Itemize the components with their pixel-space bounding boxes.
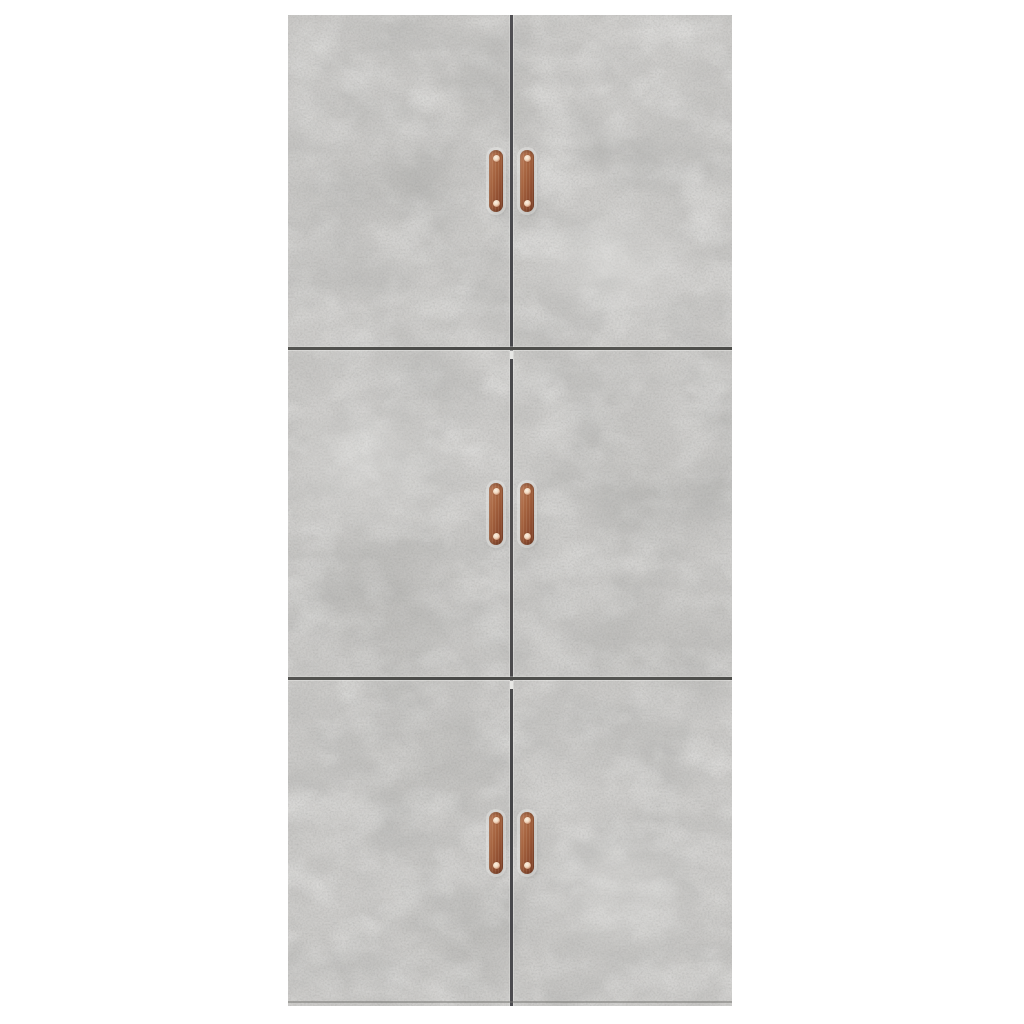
door-middle-left	[288, 350, 510, 677]
handle-rivet-bottom	[493, 200, 500, 207]
door-middle-right	[513, 350, 732, 677]
handle-rivet-bottom	[524, 862, 531, 869]
seam-highlight	[510, 351, 513, 359]
handle-rivet-top	[524, 817, 531, 824]
handle-rivet-bottom	[493, 533, 500, 540]
handle-rivet-top	[524, 155, 531, 162]
cabinet-bottom-edge	[288, 1001, 732, 1003]
door-handle	[489, 812, 503, 874]
door-handle	[489, 150, 503, 212]
handle-rivet-top	[493, 488, 500, 495]
cabinet	[288, 15, 732, 1006]
door-handle	[520, 812, 534, 874]
handle-rivet-top	[493, 155, 500, 162]
door-top-left	[288, 15, 510, 347]
handle-rivet-bottom	[524, 200, 531, 207]
upper-door-seam	[288, 347, 732, 350]
seam-highlight	[510, 681, 513, 689]
handle-rivet-top	[524, 488, 531, 495]
door-handle	[489, 483, 503, 545]
product-photo-scene	[0, 0, 1024, 1024]
lower-door-seam	[288, 677, 732, 680]
center-door-seam	[510, 15, 513, 1006]
handle-rivet-bottom	[493, 862, 500, 869]
door-bottom-left	[288, 680, 510, 1006]
door-handle	[520, 483, 534, 545]
handle-rivet-top	[493, 817, 500, 824]
handle-rivet-bottom	[524, 533, 531, 540]
door-top-right	[513, 15, 732, 347]
door-bottom-right	[513, 680, 732, 1006]
door-handle	[520, 150, 534, 212]
